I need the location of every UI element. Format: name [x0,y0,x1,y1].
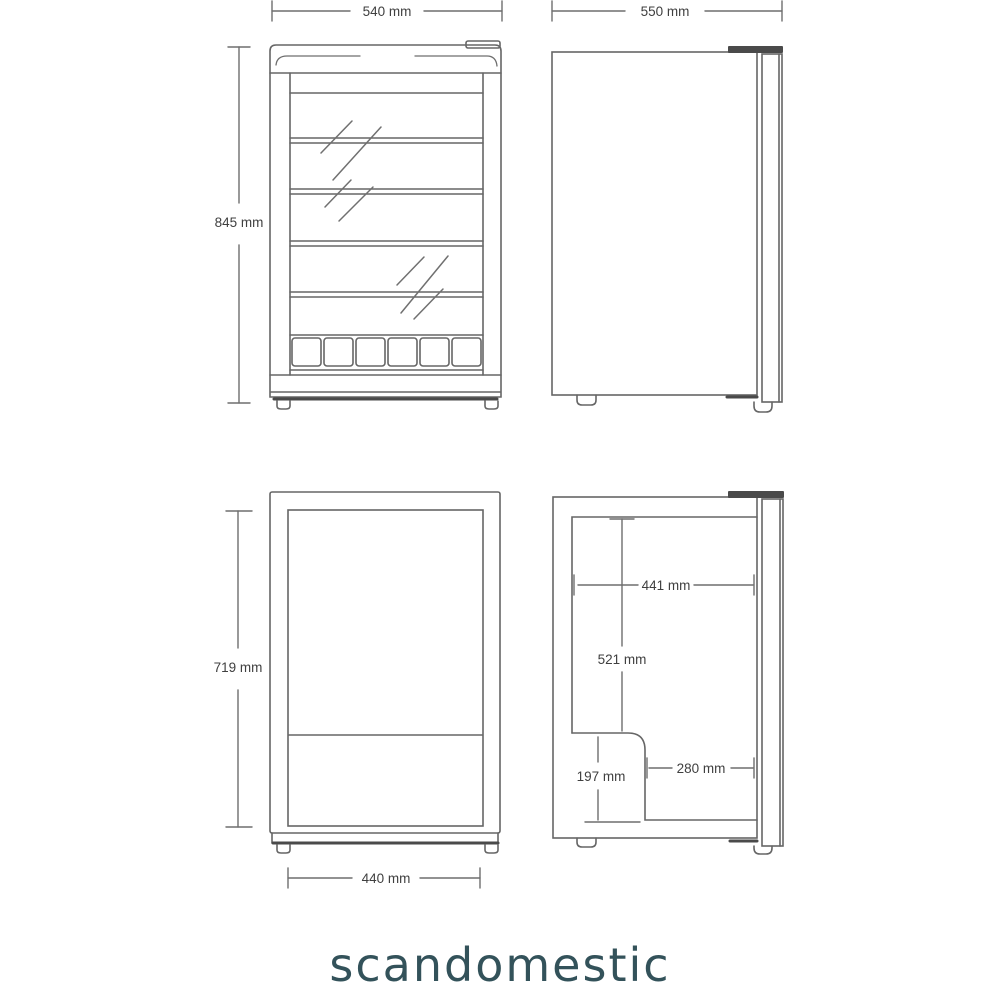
front-interior-view: 719 mm 440 mm [214,492,500,888]
cavity-back-top [572,517,757,733]
front-width-label: 540 mm [363,4,412,19]
front-base [270,375,501,409]
front-exterior-view: 540 mm 845 mm [215,1,502,409]
brand-logo: scandomestic [329,938,670,992]
compressor-height-dimension: 197 mm [577,737,640,822]
side-foot [577,838,596,847]
side-exterior-view: 550 mm [552,1,783,412]
interior-front-width-label: 440 mm [362,871,411,886]
diagram-canvas: 540 mm 845 mm [0,0,1000,1000]
interior-upper-height-label: 521 mm [598,652,647,667]
side-foot [577,395,596,405]
side-depth-label: 550 mm [641,4,690,19]
front-left-foot [277,401,290,409]
fridge-dimension-diagram: 540 mm 845 mm [0,0,1000,1000]
interior-right-foot [485,845,498,853]
glass-reflection-marks [321,121,448,319]
interior-left-foot [277,845,290,853]
door-frame [288,510,483,826]
compressor-height-label: 197 mm [577,769,626,784]
side-interior-outline [553,491,784,854]
top-hinge-plate [728,46,783,53]
glass-door-shelves [290,138,483,297]
compressor-depth-dimension: 280 mm [647,758,754,778]
bottom-hinge [754,402,772,412]
top-hinge-plate [728,491,784,498]
bottle-rack [290,335,483,370]
interior-front-height-label: 719 mm [214,660,263,675]
interior-front-width-dimension: 440 mm [288,868,480,888]
side-interior-view: 441 mm 521 mm 197 mm 280 mm [553,491,784,854]
interior-depth-label: 441 mm [642,578,691,593]
side-cabinet-outline [552,46,783,412]
side-depth-dimension: 550 mm [552,1,782,21]
compressor-depth-label: 280 mm [677,761,726,776]
front-height-label: 845 mm [215,215,264,230]
interior-front-height-dimension: 719 mm [214,511,263,827]
front-height-dimension: 845 mm [215,47,264,403]
front-right-foot [485,401,498,409]
interior-upper-height-dimension: 521 mm [598,519,647,731]
front-interior-outline [270,492,500,853]
front-width-dimension: 540 mm [272,1,502,21]
bottom-hinge [754,846,772,854]
interior-depth-dimension: 441 mm [574,575,754,595]
